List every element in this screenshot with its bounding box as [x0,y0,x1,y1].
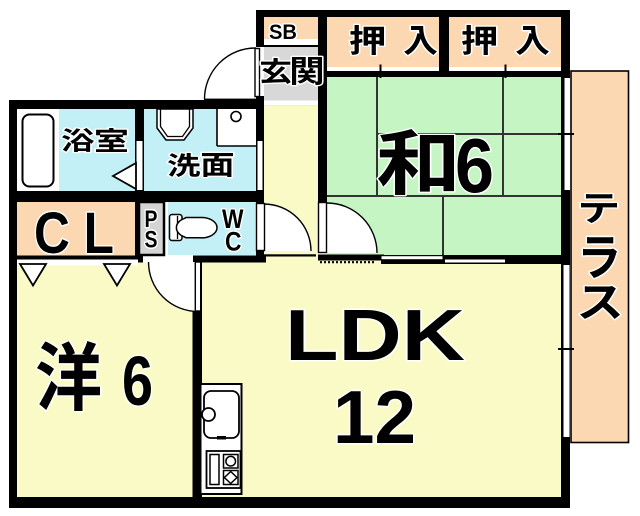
svg-text:SB: SB [269,21,297,44]
svg-text:S: S [145,227,158,254]
svg-text:LDK: LDK [285,296,465,376]
svg-text:C: C [225,227,242,257]
svg-text:C L: C L [34,201,114,266]
svg-text:6: 6 [455,124,494,210]
svg-text:12: 12 [333,375,416,459]
svg-text:6: 6 [122,342,153,420]
